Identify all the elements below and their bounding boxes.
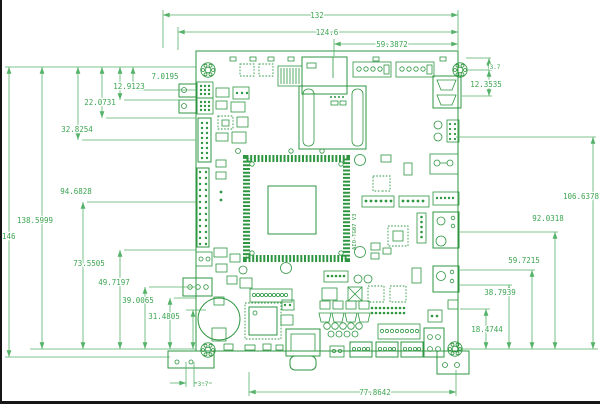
parts-under-usb bbox=[434, 120, 459, 142]
dim-bottom-3-7: 3.7 bbox=[170, 381, 212, 388]
dim-left-73-5505: 73.5505 bbox=[73, 250, 120, 349]
drawing-canvas: AIO-TG07 V3 bbox=[0, 0, 600, 404]
pin-header-top-1 bbox=[353, 62, 391, 77]
mounting-hole-top-left bbox=[201, 63, 215, 77]
dim-right-3-7: 3.7 bbox=[489, 58, 501, 71]
pin-header-top-2 bbox=[396, 62, 434, 77]
dim-left-49-7197: 49.7197 bbox=[98, 278, 145, 349]
svg-text:3.7: 3.7 bbox=[490, 64, 501, 71]
cpu-bga bbox=[247, 159, 347, 259]
bottom-edge-connectors bbox=[330, 342, 423, 357]
rj45-jack bbox=[302, 57, 347, 94]
right-mid-parts bbox=[362, 154, 459, 259]
svg-text:49.7197: 49.7197 bbox=[98, 278, 130, 287]
dim-left-12-9123: 12.9123 bbox=[113, 67, 145, 100]
svg-text:31.4805: 31.4805 bbox=[148, 312, 180, 321]
dim-width-124-6: 124.6 bbox=[178, 28, 458, 37]
board-silkscreen-text: AIO-TG07 V3 bbox=[352, 214, 358, 250]
dim-label-124-6: 124.6 bbox=[316, 28, 339, 37]
right-edge-connector-1 bbox=[433, 212, 459, 248]
svg-text:106.6378: 106.6378 bbox=[563, 192, 600, 201]
dim-right-18-4744: 18.4744 bbox=[471, 309, 503, 349]
dim-right-106-6378: 106.6378 bbox=[563, 137, 600, 349]
svg-text:146: 146 bbox=[2, 232, 16, 241]
svg-text:77.8642: 77.8642 bbox=[359, 388, 391, 397]
svg-text:59.7215: 59.7215 bbox=[508, 256, 540, 265]
dim-right-92-0318: 92.0318 bbox=[532, 214, 564, 349]
dim-right-38-7939: 38.7939 bbox=[484, 285, 516, 349]
dim-width-59-3872: 59.3872 bbox=[334, 40, 458, 49]
dim-left-39-0065: 39.0065 bbox=[122, 296, 170, 349]
dim-left-94-6828: 94.6828 bbox=[60, 187, 92, 349]
svg-text:12.9123: 12.9123 bbox=[113, 82, 145, 91]
dim-label-132: 132 bbox=[310, 11, 324, 20]
power-terminal bbox=[424, 328, 444, 357]
gpio-pin-strip bbox=[197, 168, 209, 247]
qfp-chip bbox=[245, 303, 281, 339]
dim-label-59-3872: 59.3872 bbox=[376, 40, 408, 49]
dim-left-138-5999: 138.5999 bbox=[17, 67, 53, 349]
svg-text:3.7: 3.7 bbox=[198, 381, 209, 388]
svg-text:39.0065: 39.0065 bbox=[122, 296, 154, 305]
dim-left-31-4805: 31.4805 bbox=[148, 310, 193, 349]
pcb-dimension-drawing: AIO-TG07 V3 bbox=[0, 0, 600, 404]
pcb-board: AIO-TG07 V3 bbox=[168, 51, 469, 374]
card-slot bbox=[299, 86, 366, 149]
svg-text:18.4744: 18.4744 bbox=[471, 325, 503, 334]
sot-package-row bbox=[319, 301, 370, 322]
dim-height-overall: 146 bbox=[2, 67, 16, 357]
svg-text:92.0318: 92.0318 bbox=[532, 214, 564, 223]
dimension-annotations: 132 124.6 59.3872 7.0195 12.9123 22.0731… bbox=[2, 10, 600, 397]
svg-text:94.6828: 94.6828 bbox=[60, 187, 92, 196]
usb-stack-top-right bbox=[433, 76, 461, 108]
usb-bottom-connector bbox=[286, 329, 320, 370]
svg-text:7.0195: 7.0195 bbox=[151, 72, 178, 81]
comb-connector bbox=[278, 66, 302, 86]
crossed-chip bbox=[348, 287, 362, 301]
svg-text:38.7939: 38.7939 bbox=[484, 288, 516, 297]
left-column-parts bbox=[216, 87, 249, 143]
dim-left-22-0731: 22.0731 bbox=[84, 67, 116, 118]
pad-circle-rows bbox=[324, 323, 363, 337]
svg-text:12.3535: 12.3535 bbox=[470, 80, 502, 89]
top-edge-pads bbox=[230, 57, 446, 61]
ic-small-2 bbox=[259, 64, 273, 76]
lvds-connector bbox=[198, 118, 211, 162]
right-edge-connector-2 bbox=[433, 266, 459, 292]
long-header-bottom-right bbox=[378, 324, 420, 339]
ic-small-1 bbox=[240, 64, 254, 76]
dim-width-overall: 132 bbox=[163, 11, 458, 20]
coin-battery bbox=[198, 297, 240, 341]
svg-text:32.8254: 32.8254 bbox=[61, 125, 93, 134]
mounting-hole-top-right bbox=[453, 63, 467, 77]
left-small-connector bbox=[196, 252, 212, 266]
dim-bottom-77-8642: 77.8642 bbox=[249, 388, 456, 397]
svg-text:73.5505: 73.5505 bbox=[73, 259, 105, 268]
mounting-hole-bottom-left bbox=[201, 343, 215, 357]
dim-right-12-3535: 12.3535 bbox=[470, 70, 502, 96]
mid-left-parts bbox=[214, 160, 240, 272]
svg-text:22.0731: 22.0731 bbox=[84, 98, 116, 107]
bottom-right-chips bbox=[368, 268, 458, 322]
svg-text:138.5999: 138.5999 bbox=[17, 216, 53, 225]
screenshot-left-border bbox=[0, 0, 2, 404]
center-bottom-parts bbox=[322, 271, 372, 301]
